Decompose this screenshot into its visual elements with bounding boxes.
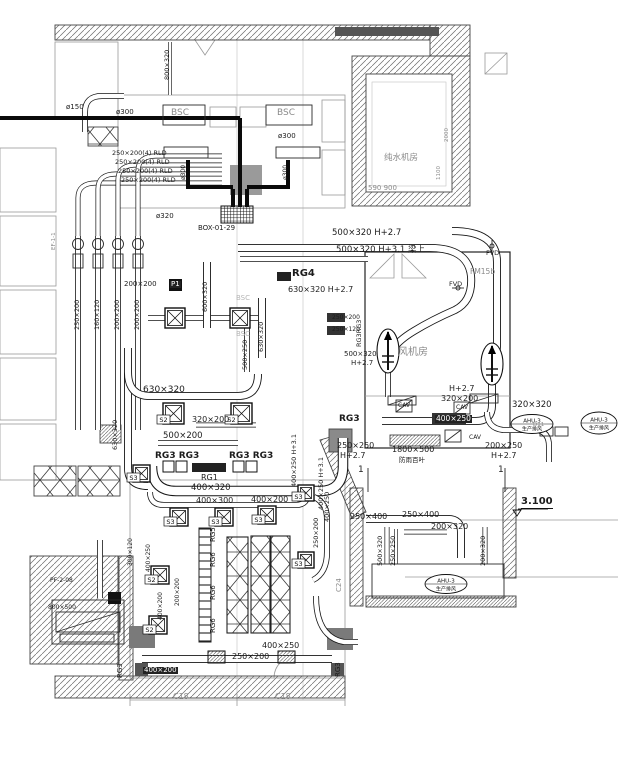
pipe-size-label: ø300	[181, 165, 187, 180]
fan-tag: EF-1-1	[52, 232, 58, 250]
fan-box	[108, 592, 121, 604]
duct-size-label: 250×200(4) RLD	[121, 177, 176, 184]
louver-size-label: 800×500	[48, 605, 76, 611]
duct-size-label: 630×320 H+2.7	[288, 286, 353, 294]
duct-size-label: 600×320	[202, 282, 209, 312]
louver-size-label: 1800×500	[392, 446, 434, 454]
floor-plan-drawing: S2S2S3S3S3S3S3S3S2S2 AHU-3生产排风AHU-3生产排风A…	[0, 0, 618, 763]
duct-size-label: 500×320 H+3.1 梁上	[336, 246, 425, 255]
duct-size-label: 400×200	[143, 667, 178, 674]
duct-size-label: 250×200(4) RLD	[118, 168, 173, 175]
equipment-rack	[271, 536, 290, 633]
grille-tag: RG3 RG3	[229, 452, 273, 461]
damper-tag: FVD	[449, 281, 462, 288]
fan-tag: PF-2-08	[50, 578, 73, 584]
hvac-floor-plan: S2S2S3S3S3S3S3S3S2S2 AHU-3生产排风AHU-3生产排风A…	[0, 0, 618, 763]
duct-size-label: 160×120	[94, 300, 101, 330]
duct-size-label: 400×250 H+3.1	[318, 457, 325, 510]
duct-size-label: 400×250 H+3.1	[291, 434, 298, 487]
door-swing	[402, 254, 426, 278]
air-diffuser: S3	[209, 508, 233, 526]
pipe-size-label: ø300	[283, 165, 289, 180]
grille-tag: RG3 RG3	[155, 452, 199, 461]
diffuser-tag: S3	[254, 516, 262, 524]
bsc-cabinet-label: BSC	[236, 331, 250, 338]
bsc-cabinet-label: BSC	[171, 109, 189, 118]
ahu-tag: AHU-3生产排风	[511, 415, 553, 434]
duct-size-label: 400×250	[146, 544, 152, 572]
section-cut-number: 1	[498, 466, 504, 475]
cav-box-tag: CAV	[456, 405, 468, 411]
door-tag: FM15b	[470, 268, 495, 276]
duct-size-label: 500×200	[163, 432, 203, 441]
room-label-pure-water: 纯水机房	[384, 154, 418, 163]
duct-size-label: 200×250	[485, 442, 522, 450]
louver-name-label: 防雨百叶	[399, 457, 425, 464]
duct-size-label: 320×200	[192, 416, 229, 424]
duct-size-label: 250×400	[402, 511, 439, 519]
duct-size-label: 250×200	[74, 300, 81, 330]
grille-tag: RG4	[292, 269, 315, 279]
dimension-label: 2000	[445, 128, 451, 142]
diffuser-tag: S3	[294, 560, 302, 568]
dimension-label: 1100	[437, 166, 443, 180]
duct-size-label: 250×200	[313, 518, 320, 548]
diffuser-tag: S3	[211, 518, 219, 526]
ahu-tag: AHU-3生产排风	[425, 575, 467, 594]
grille-tag: RG3RG3	[356, 320, 363, 347]
equipment-rack	[251, 536, 270, 633]
duct-size-label: 200×320	[480, 536, 487, 566]
height-label: H+2.7	[449, 385, 474, 393]
rg4-grille	[277, 272, 291, 281]
height-label: H+2.7	[351, 360, 373, 367]
door-swing	[370, 254, 394, 278]
column-grid-label: C24	[336, 578, 343, 592]
damper-tag: FVD	[486, 250, 499, 257]
duct-size-label: 200×200	[114, 300, 121, 330]
duct-size-label: 200×200	[124, 281, 157, 288]
column-grid-label: C18	[275, 693, 291, 701]
pipe-size-label: ø300	[278, 133, 296, 140]
duct-size-label: 320×200	[441, 395, 478, 403]
diffuser-tag: S3	[129, 474, 137, 482]
duct-size-label: 250×200	[232, 653, 269, 661]
section-wall-right	[503, 488, 516, 578]
duct-size-label: 400×250	[262, 642, 299, 650]
duct-size-label: 400×250	[435, 415, 472, 423]
air-diffuser: S3	[252, 506, 276, 524]
box-tag: BOX-01-29	[198, 225, 235, 232]
pipe-collector-box	[221, 206, 253, 223]
bench	[276, 147, 320, 158]
duct-size-label: 400×320	[191, 484, 231, 493]
duct-size-label: 630×320	[258, 322, 265, 352]
air-diffuser	[230, 308, 250, 328]
duct-size-label: 250×200(4) RLD	[112, 150, 167, 157]
bsc-cabinet-label: BSC	[277, 109, 295, 118]
grille-tag: RG3	[335, 662, 342, 677]
cav-box-tag: CAV	[469, 435, 481, 441]
duct-size-label: 250×200(4) RLD	[115, 159, 170, 166]
grille-tag: RG6	[210, 618, 217, 633]
diffuser-tag: S2	[159, 416, 167, 424]
duct-size-label: 500×320 H+2.7	[332, 229, 401, 238]
bottom-wall	[55, 676, 345, 698]
room-label-fan-room: 风机房	[398, 348, 428, 358]
cav-box-tag: CAV	[398, 403, 410, 409]
duct-size-label: 400×200	[158, 592, 164, 620]
grille-tag: RG3	[117, 663, 124, 678]
duct-size-label: 630×320	[143, 386, 185, 395]
diffuser-tag: S2	[145, 626, 153, 634]
duct-size-label: 500×250	[242, 340, 249, 370]
fan-symbol	[481, 343, 503, 385]
height-label: H+2.7	[491, 452, 516, 460]
duct-size-label: 250×250	[337, 442, 374, 450]
grille-tag: RG5	[210, 527, 217, 542]
wall-dark-band	[335, 27, 439, 36]
svg-text:生产排风: 生产排风	[436, 586, 456, 593]
section-cut-number: 1	[358, 466, 364, 475]
pipe-size-label: ø320	[156, 213, 174, 220]
level-mark-label: 3.100	[521, 497, 553, 509]
duct-size-label: 400×300	[196, 497, 233, 505]
air-diffuser: S3	[164, 508, 188, 526]
duct-size-label: 200×200	[175, 578, 181, 606]
rg1-grille	[192, 463, 226, 472]
section-wall-left	[350, 488, 363, 606]
fan-box-tag: P1	[170, 281, 181, 288]
duct-size-label: 300×120	[128, 538, 134, 566]
svg-text:AHU-3: AHU-3	[437, 579, 455, 585]
air-diffuser: S3	[292, 552, 314, 568]
column-grid-label: C18	[173, 693, 189, 701]
duct-size-label: 250×400	[350, 513, 387, 521]
air-diffuser	[165, 308, 185, 328]
device-tag: D11	[533, 423, 544, 429]
duct-size-label: 200×200	[134, 300, 141, 330]
fan-symbol	[377, 329, 399, 373]
duct-size-label: 800×320	[164, 50, 171, 80]
grille-tag: RG6	[210, 552, 217, 567]
diffuser-tag: S3	[166, 518, 174, 526]
pipe-size-label: ø300	[116, 109, 134, 116]
duct-size-label: 400×200	[251, 496, 288, 504]
duct-size-label: 200×320	[431, 523, 468, 531]
pipe-size-label: ø150	[66, 104, 84, 111]
duct-size-label: 500×320	[344, 351, 377, 358]
exhaust-fans	[377, 329, 503, 385]
grille-tag: RG3	[339, 415, 360, 424]
svg-text:生产排风: 生产排风	[589, 425, 609, 432]
dimension-label: 590 900	[368, 185, 397, 192]
bsc-cabinet-label: BSC	[236, 295, 250, 302]
grille-tag: RG1	[201, 474, 218, 482]
duct-size-label: 630×320	[112, 420, 119, 450]
svg-text:AHU-3: AHU-3	[590, 418, 608, 424]
duct-size-label: 250×250	[390, 536, 397, 566]
height-label: H+2.7	[340, 452, 365, 460]
equipment-rack	[227, 537, 248, 633]
grille-tag: RG6	[210, 585, 217, 600]
duct-size-label: 500×320	[377, 536, 384, 566]
duct-size-label: 320×320	[512, 401, 552, 410]
air-diffuser: S2	[157, 403, 184, 424]
diffuser-tag: S2	[147, 576, 155, 584]
diffuser-tag: S3	[294, 493, 302, 501]
ahu-tag: AHU-3生产排风	[581, 412, 617, 434]
